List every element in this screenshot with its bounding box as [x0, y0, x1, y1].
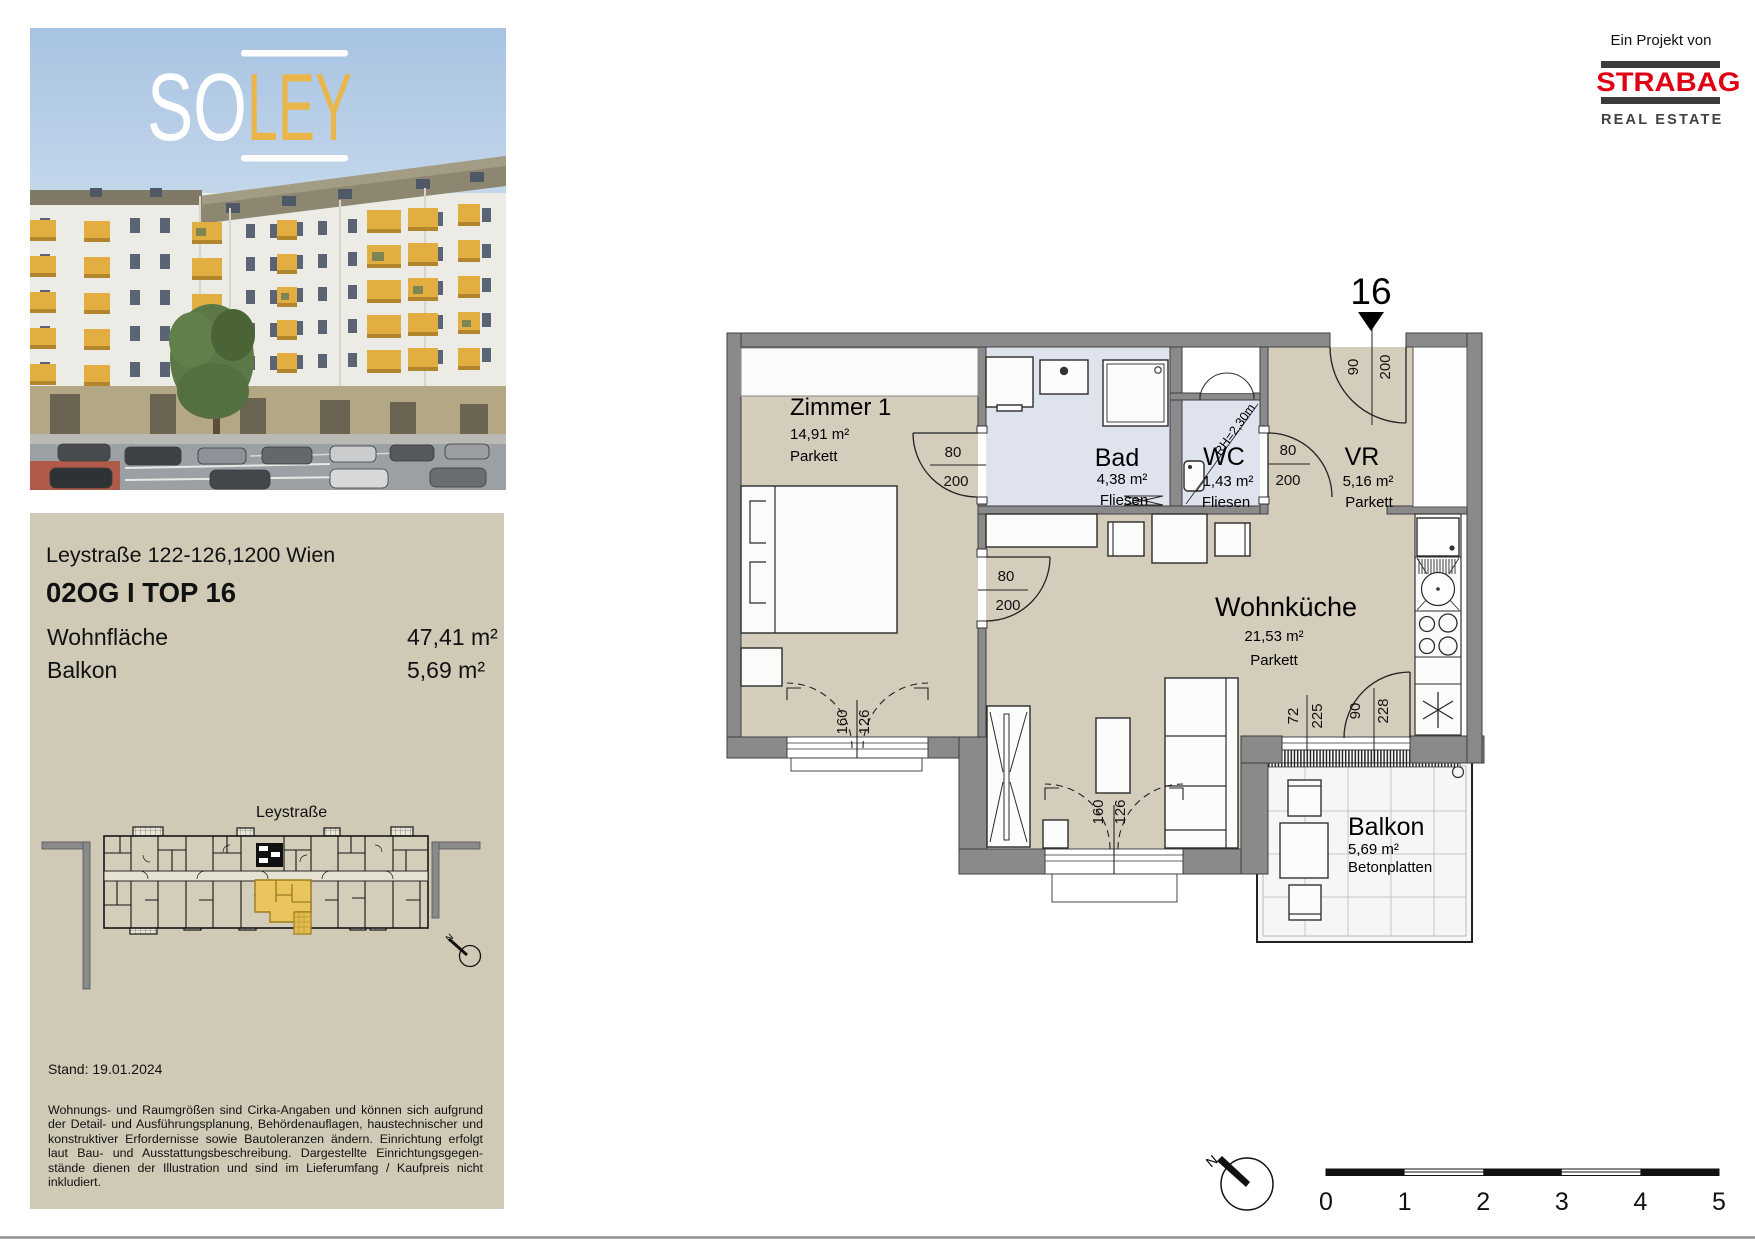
svg-text:WC: WC [1203, 443, 1245, 471]
svg-text:1: 1 [1398, 1188, 1412, 1216]
svg-text:Zimmer 1: Zimmer 1 [790, 394, 891, 421]
svg-text:90: 90 [1347, 703, 1364, 720]
svg-text:VR: VR [1345, 443, 1380, 471]
svg-text:1,43 m²: 1,43 m² [1203, 473, 1254, 490]
svg-text:0: 0 [1319, 1188, 1333, 1216]
svg-text:80: 80 [998, 568, 1015, 585]
svg-text:Parkett: Parkett [790, 448, 838, 465]
svg-text:3: 3 [1555, 1188, 1569, 1216]
svg-text:2: 2 [1476, 1188, 1490, 1216]
svg-text:Parkett: Parkett [1250, 652, 1298, 669]
svg-text:Wohnküche: Wohnküche [1215, 592, 1357, 622]
svg-text:80: 80 [945, 444, 962, 461]
svg-text:4,38 m²: 4,38 m² [1097, 471, 1148, 488]
svg-text:160: 160 [1090, 799, 1107, 824]
svg-text:4: 4 [1633, 1188, 1647, 1216]
svg-text:228: 228 [1375, 698, 1392, 723]
svg-text:21,53 m²: 21,53 m² [1244, 628, 1303, 645]
svg-text:5: 5 [1712, 1188, 1726, 1216]
svg-text:200: 200 [943, 473, 968, 490]
svg-text:Parkett: Parkett [1345, 494, 1393, 511]
svg-text:Fliesen: Fliesen [1100, 492, 1148, 509]
svg-text:200: 200 [1275, 472, 1300, 489]
svg-text:225: 225 [1309, 703, 1326, 728]
svg-text:14,91 m²: 14,91 m² [790, 426, 849, 443]
svg-text:80: 80 [1280, 442, 1297, 459]
svg-text:Bad: Bad [1095, 444, 1139, 472]
svg-text:90: 90 [1345, 359, 1362, 376]
svg-text:126: 126 [1112, 799, 1129, 824]
svg-text:200: 200 [995, 597, 1020, 614]
svg-text:126: 126 [856, 709, 873, 734]
svg-text:Fliesen: Fliesen [1202, 494, 1250, 511]
svg-text:160: 160 [834, 709, 851, 734]
svg-text:72: 72 [1285, 708, 1302, 725]
svg-text:N: N [1203, 1152, 1221, 1171]
svg-text:5,69 m²: 5,69 m² [1348, 841, 1399, 858]
svg-text:Balkon: Balkon [1348, 813, 1424, 841]
svg-text:Betonplatten: Betonplatten [1348, 859, 1432, 876]
svg-text:16: 16 [1350, 271, 1391, 312]
svg-text:200: 200 [1377, 354, 1394, 379]
svg-text:5,16 m²: 5,16 m² [1343, 473, 1394, 490]
